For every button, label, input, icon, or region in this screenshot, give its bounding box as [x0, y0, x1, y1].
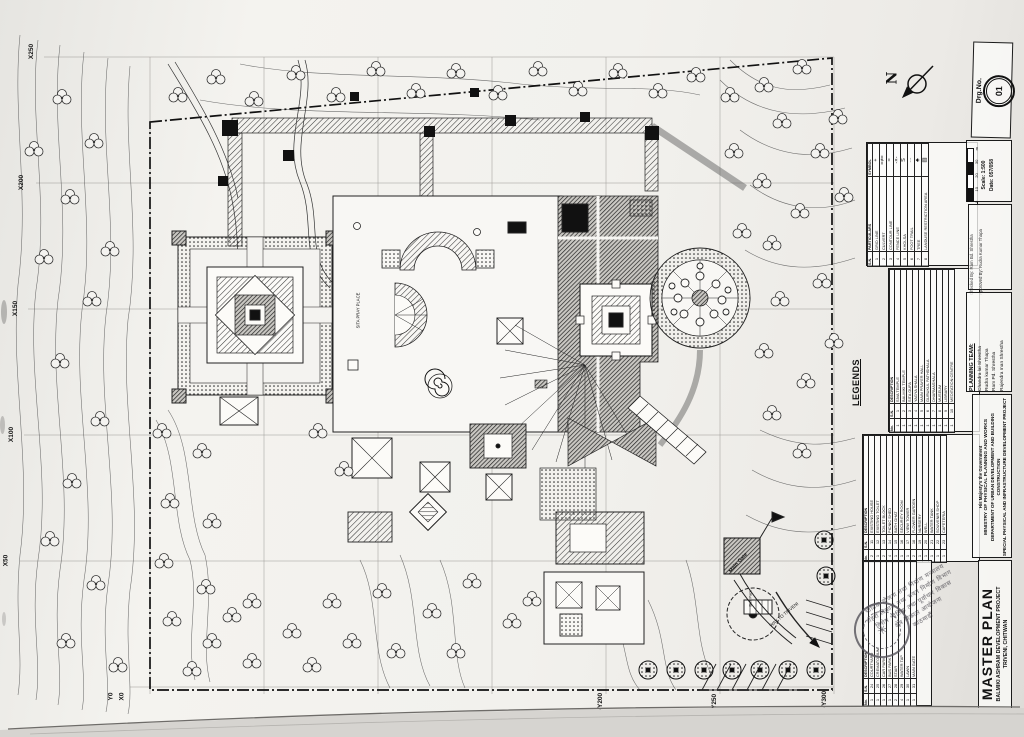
date-text: Date: 057/058	[989, 144, 995, 206]
grid-label: X100	[8, 427, 15, 442]
north-letter: N	[884, 72, 900, 85]
team-member: Rudra kumar Thapa	[984, 295, 991, 391]
symbol-legend-row: 6FOOT TRAIL···	[908, 144, 915, 267]
project-name: BALMIKI ASHRAM DEVELOPMENT PROJECT	[996, 563, 1003, 725]
checked-by: Checked By: Ram Bd. Shrestha	[969, 209, 974, 295]
scan-smudge	[1, 300, 7, 324]
title-box: MASTER PLAN BALMIKI ASHRAM DEVELOPMENT P…	[978, 560, 1012, 722]
symbol-legend-row: 8LANDUSE RESTRICTION AREA▨	[922, 144, 929, 267]
symbol-legend-table: S.N. PARTICULARS SYMBOL 1GRID LINE+ 2CUL…	[866, 142, 978, 266]
scan-smudge	[2, 612, 6, 626]
symbol-legend-row: 7TREE♣	[915, 144, 922, 267]
north-arrow	[904, 66, 933, 96]
planning-team-box: PLANNING TEAM: Chandra lal Shrestha Rudr…	[966, 292, 1012, 392]
symbol-legend-row: 3CONTOUR LINE≈	[887, 144, 894, 267]
signoff-box: Checked By: Ram Bd. Shrestha Approved By…	[968, 204, 1012, 290]
grid-label: -Y300	[821, 691, 828, 708]
symbol-legend-row: 2CULVERT=≠=	[880, 144, 887, 267]
drg-no-label: Drg.No.	[976, 78, 984, 103]
scale-text: Scale: 1:500	[981, 144, 987, 206]
grid-label: X50	[2, 555, 9, 567]
grid-label: X200	[18, 175, 25, 190]
sheet-title: MASTER PLAN	[979, 563, 995, 725]
symbol-legend-row: 4FENCE LINE-×-	[894, 144, 901, 267]
organisation-box: His Majesty's the Government MINISTRY OF…	[972, 394, 1012, 558]
drg-no-box: Drg.No. 01	[971, 41, 1013, 138]
grid-label: X0	[118, 693, 125, 701]
symbol-legend-row: 1GRID LINE+	[873, 144, 880, 267]
facility-legend-row: 131MAIN GATE	[911, 562, 917, 707]
circular-garden	[650, 248, 750, 348]
symbol-legend-row: 5KHOLSAS	[901, 144, 908, 267]
ashram-dark-complex	[558, 196, 658, 432]
bus-park-label: Bus Park	[748, 590, 753, 606]
grid-label: X250	[28, 44, 35, 59]
agency-line: SPECIAL PHYSICAL AND INFRASTRUCTURE DEVE…	[1002, 395, 1008, 559]
drg-no-value: 01	[986, 78, 1013, 105]
grid-label: X150	[12, 301, 19, 316]
facility-legend-row: 110MEDITATION CENTRE	[949, 270, 955, 433]
approved-by: Approved By: Rudra Kumar Thapa	[978, 209, 983, 295]
flag	[772, 512, 784, 522]
grid-label: Y0	[107, 693, 114, 701]
legends-heading: LEGENDS	[851, 359, 861, 406]
central-platform	[333, 196, 562, 432]
team-member: Ram Pd. Shrestha	[991, 295, 998, 391]
grid-label: -Y250	[711, 694, 718, 711]
stepped-temple	[576, 280, 656, 360]
facility-legend-row: 123CAFETERIA	[941, 436, 947, 563]
department-line: DEPARTMENT OF URBAN DEVELOPMENT AND BUIL…	[990, 395, 1002, 559]
scan-smudge	[0, 416, 5, 434]
team-member: Rajendra man Shrestha	[999, 295, 1006, 391]
scale-bar	[967, 148, 974, 202]
mandala-temple-complex	[172, 231, 340, 425]
facility-legend-band-2: No. S.N. DESCRIPTION 211EXISTING HOUSE 1…	[862, 434, 980, 562]
planning-team-heading: PLANNING TEAM:	[969, 295, 975, 391]
team-member: Chandra lal Shrestha	[977, 295, 984, 391]
legends-heading-block: LEGENDS	[846, 350, 866, 406]
grid-label: -Y200	[597, 693, 604, 710]
project-location: TRIVENI, CHITWAN	[1003, 563, 1010, 725]
lower-ashram-complex	[544, 396, 706, 644]
facility-legend-band-3: No. S.N. DESCRIPTION 124COURTYARD 125CRE…	[862, 560, 932, 706]
pray-place-label: SITA PRAY PLACE	[355, 293, 360, 329]
walkway-node-markers	[218, 88, 659, 186]
scale-box: 010 2030 m Scale: 1:500 Date: 057/058	[966, 140, 1012, 202]
scale-ticks: 010 2030 m	[974, 147, 979, 203]
